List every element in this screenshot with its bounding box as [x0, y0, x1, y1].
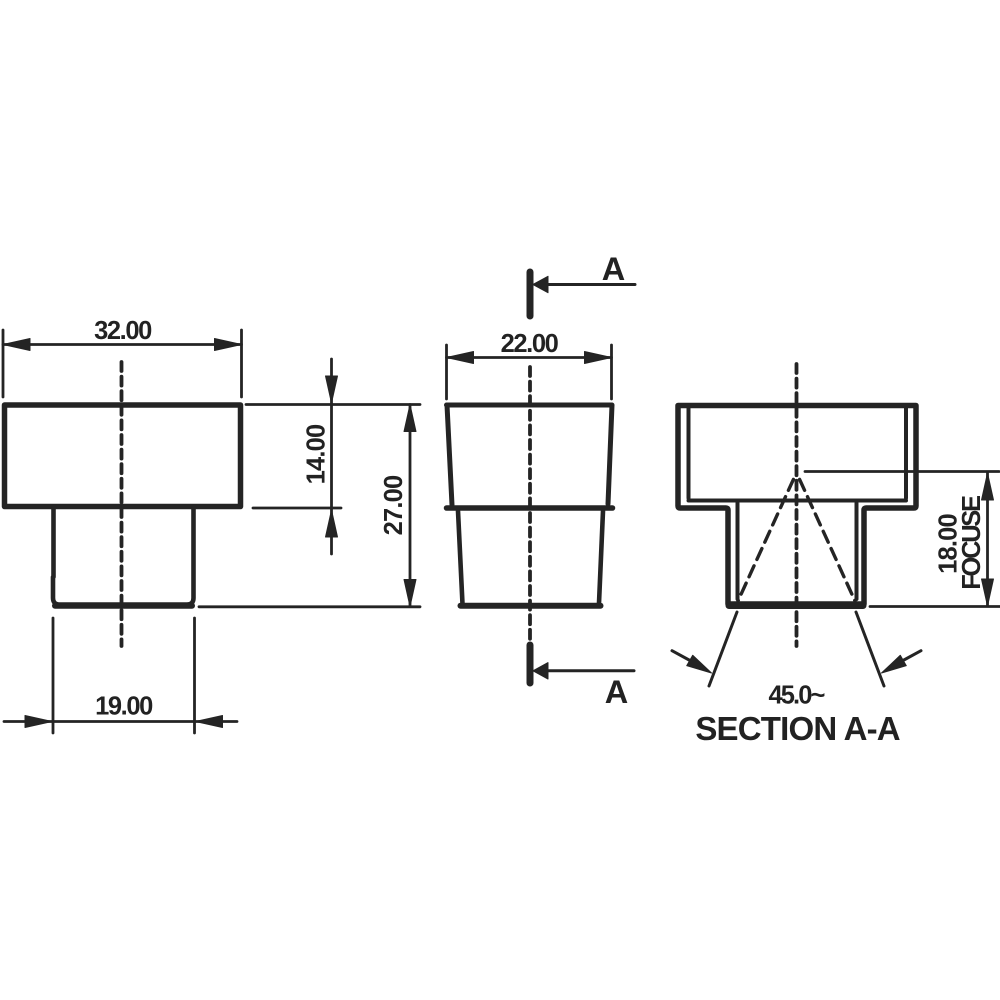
svg-text:A: A	[602, 251, 625, 287]
svg-text:45.0~: 45.0~	[768, 682, 824, 710]
svg-text:FOCUSE: FOCUSE	[958, 495, 986, 590]
svg-text:19.00: 19.00	[95, 693, 153, 721]
svg-text:22.00: 22.00	[501, 330, 559, 358]
svg-text:27.00: 27.00	[380, 475, 408, 535]
svg-text:32.00: 32.00	[94, 317, 152, 345]
svg-text:SECTION A-A: SECTION A-A	[695, 710, 899, 747]
svg-text:14.00: 14.00	[303, 424, 331, 484]
svg-text:A: A	[605, 674, 628, 710]
